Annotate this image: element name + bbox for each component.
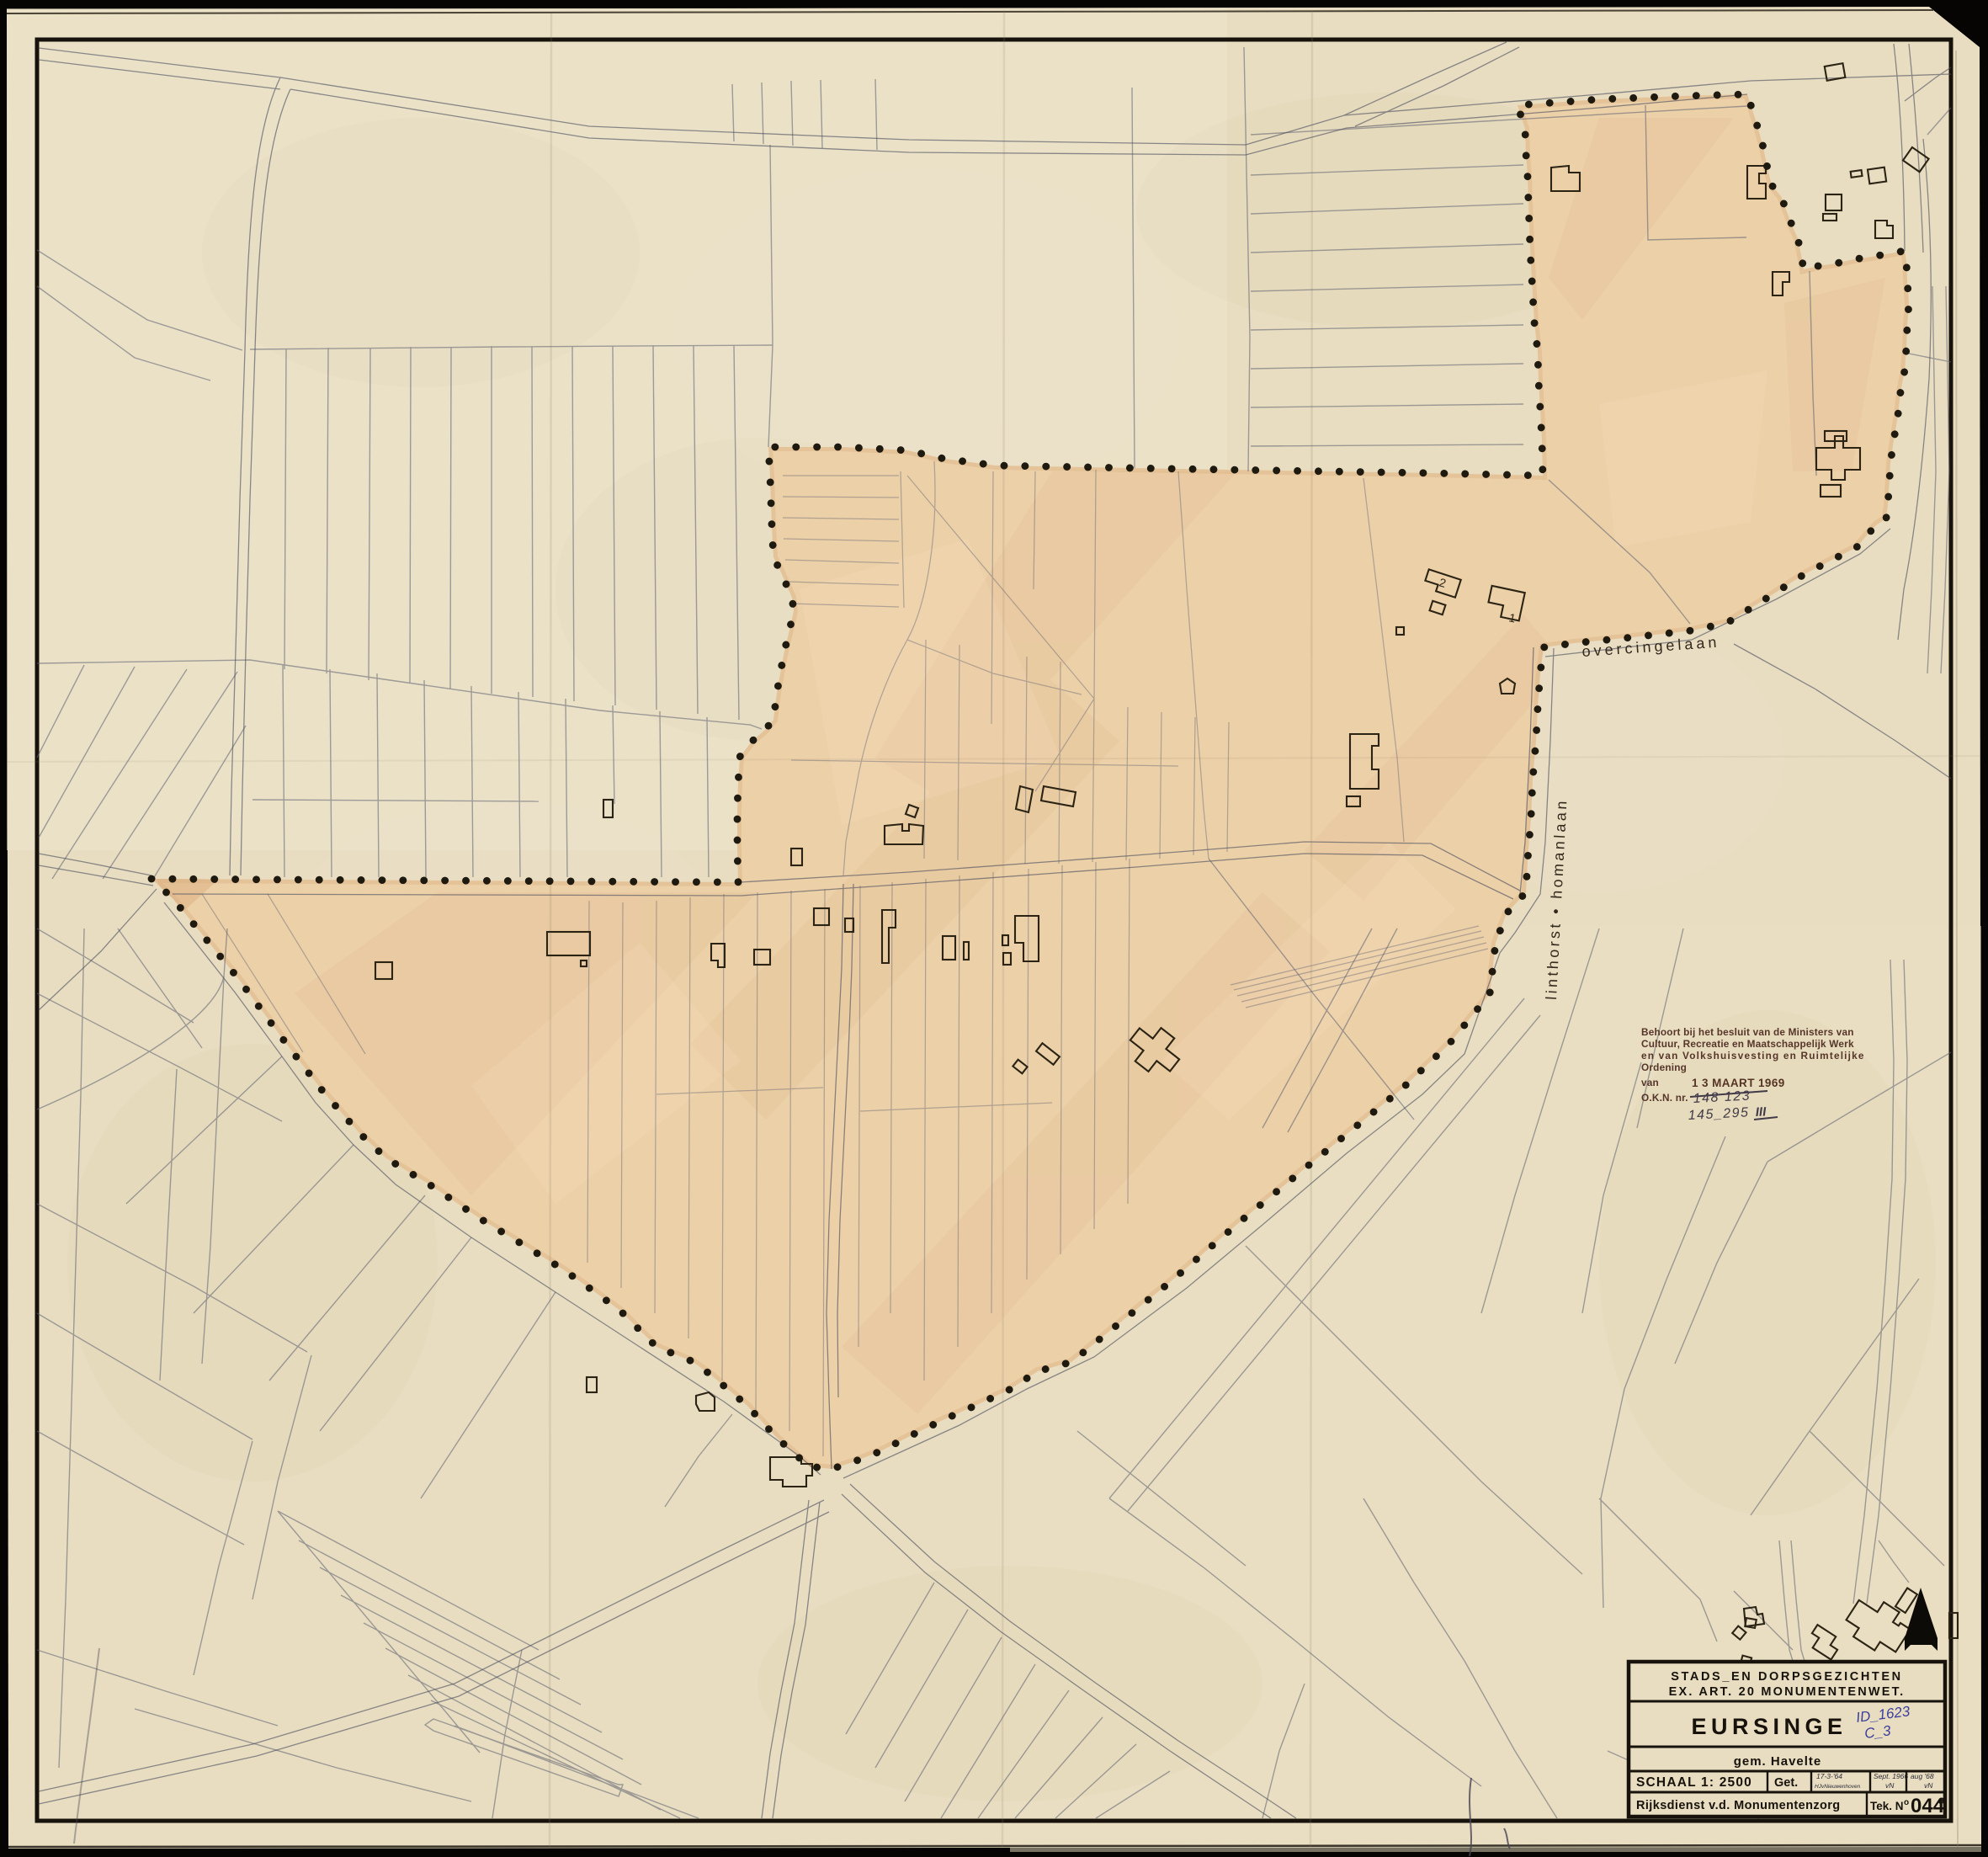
svg-text:Ordening: Ordening	[1641, 1062, 1687, 1073]
svg-text:a: a	[1938, 1793, 1945, 1806]
svg-text:van: van	[1641, 1077, 1659, 1088]
svg-text:EURSINGE: EURSINGE	[1691, 1714, 1847, 1739]
svg-text:148 123: 148 123	[1693, 1088, 1751, 1106]
svg-text:Sept. 1966: Sept. 1966	[1874, 1772, 1908, 1780]
svg-text:vN: vN	[1885, 1781, 1895, 1790]
svg-text:HJvNieuwenhoven: HJvNieuwenhoven	[1815, 1784, 1861, 1790]
svg-text:gem. Havelte: gem. Havelte	[1734, 1754, 1822, 1769]
svg-text:O.K.N. nr.: O.K.N. nr.	[1641, 1092, 1688, 1104]
svg-text:vN: vN	[1924, 1781, 1933, 1790]
svg-text:Cultuur, Recreatie en Maatscha: Cultuur, Recreatie en Maatschappelijk We…	[1641, 1038, 1854, 1050]
svg-text:Rijksdienst v.d. Monumentenzor: Rijksdienst v.d. Monumentenzorg	[1636, 1799, 1841, 1812]
svg-text:EX. ART. 20 MONUMENTENWET.: EX. ART. 20 MONUMENTENWET.	[1669, 1685, 1906, 1699]
svg-text:1 3 MAART 1969: 1 3 MAART 1969	[1692, 1077, 1785, 1089]
svg-text:17-3-'64: 17-3-'64	[1816, 1772, 1842, 1780]
svg-text:SCHAAL 1: 2500: SCHAAL 1: 2500	[1636, 1775, 1752, 1790]
svg-text:Get.: Get.	[1774, 1776, 1798, 1790]
svg-text:C_3: C_3	[1863, 1722, 1892, 1742]
svg-text:III: III	[1755, 1104, 1767, 1120]
svg-text:aug '68: aug '68	[1911, 1772, 1934, 1780]
svg-text:o: o	[1904, 1798, 1909, 1807]
svg-text:STADS_EN DORPSGEZICHTEN: STADS_EN DORPSGEZICHTEN	[1671, 1670, 1902, 1684]
svg-text:Behoort bij het besluit van de: Behoort bij het besluit van de Ministers…	[1641, 1026, 1854, 1038]
svg-text:en van Volkshuisvesting en Rui: en van Volkshuisvesting en Ruimtelijke	[1641, 1050, 1865, 1062]
svg-text:Tek. N: Tek. N	[1870, 1800, 1904, 1812]
